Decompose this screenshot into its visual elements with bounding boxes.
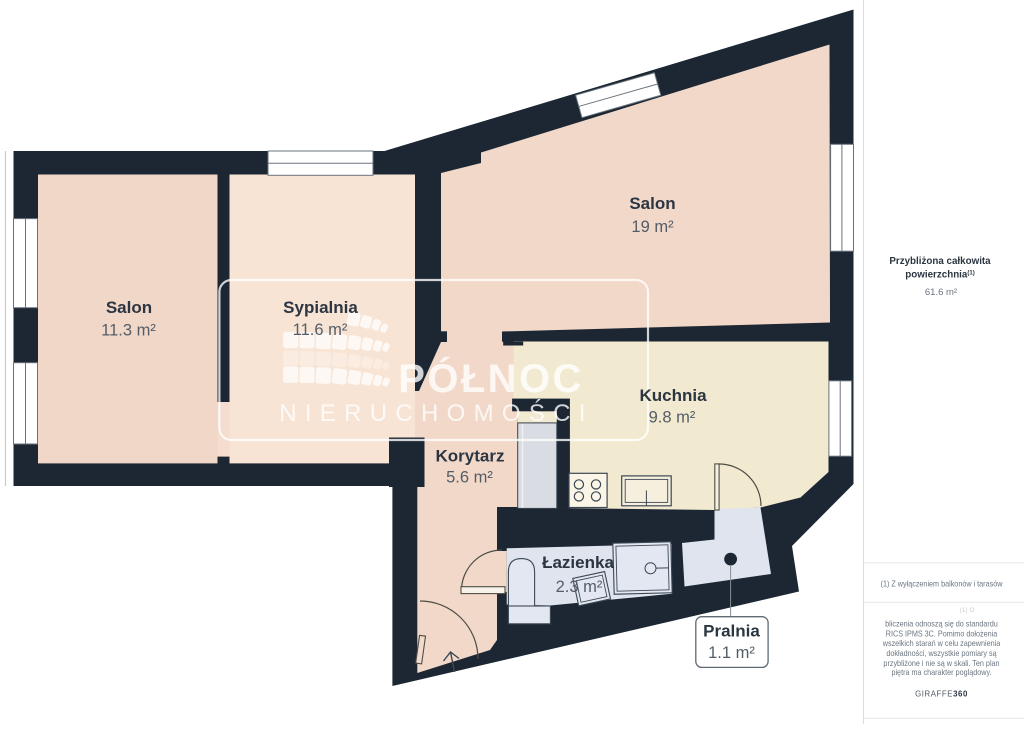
svg-text:9.8 m²: 9.8 m² <box>649 409 696 427</box>
svg-text:2.3 m²: 2.3 m² <box>556 578 603 596</box>
svg-text:piętra ma charakter poglądowy.: piętra ma charakter poglądowy. <box>891 668 991 678</box>
svg-text:NIERUCHOMOŚCI: NIERUCHOMOŚCI <box>279 399 594 427</box>
svg-text:Salon: Salon <box>629 194 675 213</box>
svg-text:dokładności, wszystkie pomiary: dokładności, wszystkie pomiary są <box>886 649 997 659</box>
svg-text:PÓŁNOC: PÓŁNOC <box>398 355 584 401</box>
svg-text:5.6 m²: 5.6 m² <box>446 469 493 487</box>
svg-text:11.6 m²: 11.6 m² <box>293 321 348 339</box>
svg-text:(1) O: (1) O <box>960 607 975 614</box>
svg-text:GIRAFFE360: GIRAFFE360 <box>915 690 968 699</box>
svg-text:Przybliżona całkowita: Przybliżona całkowita <box>889 256 991 267</box>
svg-text:1.1 m²: 1.1 m² <box>708 644 755 662</box>
svg-text:Sypialnia: Sypialnia <box>283 298 358 317</box>
svg-text:19 m²: 19 m² <box>631 218 674 236</box>
svg-text:wszelkich starań w celu zapewn: wszelkich starań w celu zapewnienia <box>882 639 1001 649</box>
svg-text:11.3 m²: 11.3 m² <box>101 322 156 340</box>
svg-text:(1) Z wyłączeniem balkonów i t: (1) Z wyłączeniem balkonów i tarasów <box>881 579 1003 589</box>
svg-text:Korytarz: Korytarz <box>436 447 505 466</box>
svg-text:przybliżone i nie są w skali.: przybliżone i nie są w skali. Ten plan <box>883 658 999 668</box>
svg-text:Pralnia: Pralnia <box>703 622 760 641</box>
svg-text:bliczenia odnoszą się do stand: bliczenia odnoszą się do standardu <box>885 619 998 629</box>
svg-text:61.6 m²: 61.6 m² <box>925 287 957 298</box>
svg-text:powierzchnia(1): powierzchnia(1) <box>905 270 974 281</box>
svg-text:Salon: Salon <box>106 298 152 317</box>
svg-text:Łazienka: Łazienka <box>542 553 614 572</box>
svg-text:RICS IPMS 3C. Pomimo dołożenia: RICS IPMS 3C. Pomimo dołożenia <box>886 629 998 639</box>
svg-text:Kuchnia: Kuchnia <box>639 386 707 405</box>
